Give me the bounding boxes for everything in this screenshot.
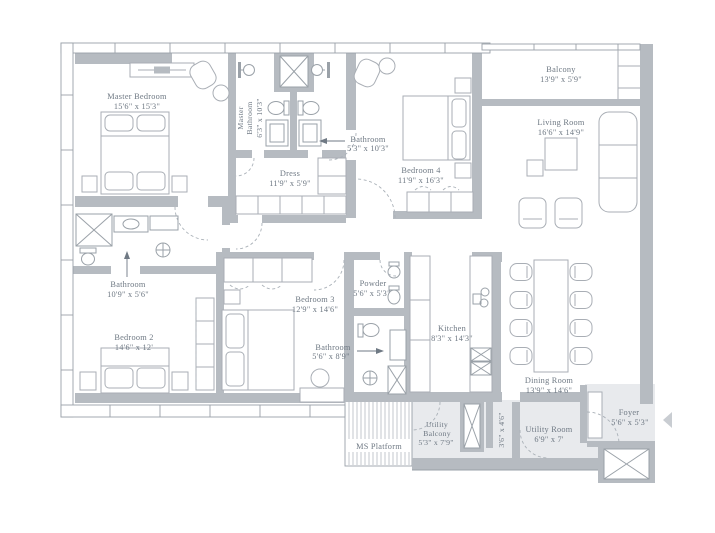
utility-shaft xyxy=(464,404,480,448)
elevator xyxy=(604,449,649,479)
bedroom3-dims: 12'9" x 14'6" xyxy=(292,305,338,314)
side-table xyxy=(379,58,395,74)
dining-room-dims: 13'9" x 14'6" xyxy=(526,386,572,395)
wash-basin xyxy=(363,371,377,385)
bathroom-shaft xyxy=(280,56,308,87)
utility-room-dims: 6'9" x 7' xyxy=(534,435,564,444)
floor-plan-drawing: Master Bedroom 15'6" x 15'3" Master Bath… xyxy=(0,0,715,533)
bed xyxy=(222,310,294,390)
kitchen-dims: 8'3" x 14'3" xyxy=(431,334,473,343)
shower-tray xyxy=(299,120,321,146)
armchair xyxy=(555,198,582,228)
shower xyxy=(76,214,112,246)
bedroom4-label: Bedroom 4 xyxy=(401,166,441,175)
kitchen-counter-left xyxy=(410,256,430,392)
desk xyxy=(300,388,344,402)
passage-dims: 3'6" x 4'6" xyxy=(497,412,506,447)
bathroom-left-label: Bathroom xyxy=(110,280,145,289)
bathroom-top-dims: 5'3" x 10'3" xyxy=(347,144,389,153)
dining-table xyxy=(534,260,568,372)
nightstand xyxy=(455,78,471,93)
ms-platform-hatch xyxy=(345,400,412,466)
balcony-label: Balcony xyxy=(546,65,576,74)
nightstand xyxy=(455,163,471,178)
utility-balcony-dims: 5'3" x 7'9" xyxy=(418,438,453,447)
toilet xyxy=(268,101,289,115)
powder-dims: 5'6" x 5'3" xyxy=(353,289,390,298)
toilet xyxy=(80,248,96,265)
master-bedroom-label: Master Bedroom xyxy=(107,92,167,101)
armchair xyxy=(519,198,546,228)
shower-tray xyxy=(390,330,406,360)
sofa xyxy=(599,112,637,212)
dress-dims: 11'9" x 5'9" xyxy=(269,179,311,188)
master-bed xyxy=(101,112,169,194)
living-room-label: Living Room xyxy=(537,118,585,127)
bedroom3-label: Bedroom 3 xyxy=(295,295,334,304)
foyer-label: Foyer xyxy=(619,408,640,417)
utility-balcony-label-2: Balcony xyxy=(423,429,451,438)
master-bathroom-dims: 6'3" x 10'3" xyxy=(255,98,264,137)
master-bathroom-label-2: Bathroom xyxy=(245,101,254,134)
bedroom2-dims: 14'6" x 12' xyxy=(115,343,153,352)
dress-label: Dress xyxy=(280,169,300,178)
shower-tray xyxy=(266,120,288,146)
bathroom-top-label: Bathroom xyxy=(350,135,385,144)
shaft-box xyxy=(388,366,406,394)
bed xyxy=(403,96,470,160)
balcony-dims: 13'9" x 5'9" xyxy=(540,75,582,84)
bathroom-mid-label: Bathroom xyxy=(315,343,350,352)
coffee-table xyxy=(545,138,577,170)
kitchen-sink xyxy=(471,348,491,375)
wardrobe xyxy=(196,298,214,390)
ms-platform-label: MS Platform xyxy=(356,442,402,451)
nightstand xyxy=(172,372,188,390)
utility-room-label: Utility Room xyxy=(525,425,572,434)
master-bedroom-dims: 15'6" x 15'3" xyxy=(114,102,160,111)
nightstand xyxy=(82,176,97,192)
bedroom2-label: Bedroom 2 xyxy=(114,333,153,342)
side-table xyxy=(213,85,229,101)
toilet xyxy=(358,324,379,338)
bed xyxy=(101,348,169,393)
nightstand xyxy=(224,290,240,304)
vanity xyxy=(114,216,148,232)
master-bathroom-label-1: Master xyxy=(236,106,245,129)
floor-plan-canvas: Master Bedroom 15'6" x 15'3" Master Bath… xyxy=(0,0,715,533)
dining-room-label: Dining Room xyxy=(525,376,573,385)
powder-label: Powder xyxy=(360,279,387,288)
nightstand xyxy=(80,372,96,390)
foyer-dims: 5'6" x 5'3" xyxy=(611,418,648,427)
kitchen-label: Kitchen xyxy=(438,324,467,333)
bathroom-mid-dims: 5'6" x 8'9" xyxy=(312,352,349,361)
toilet xyxy=(298,101,319,115)
living-room-dims: 16'6" x 14'9" xyxy=(538,128,584,137)
bathroom-left-dims: 10'9" x 5'6" xyxy=(107,290,149,299)
nightstand xyxy=(172,176,187,192)
bedroom4-dims: 11'9" x 16'3" xyxy=(398,176,444,185)
desk-chair xyxy=(311,369,329,387)
side-table xyxy=(527,160,543,176)
utility-balcony-label-1: Utility xyxy=(426,420,448,429)
